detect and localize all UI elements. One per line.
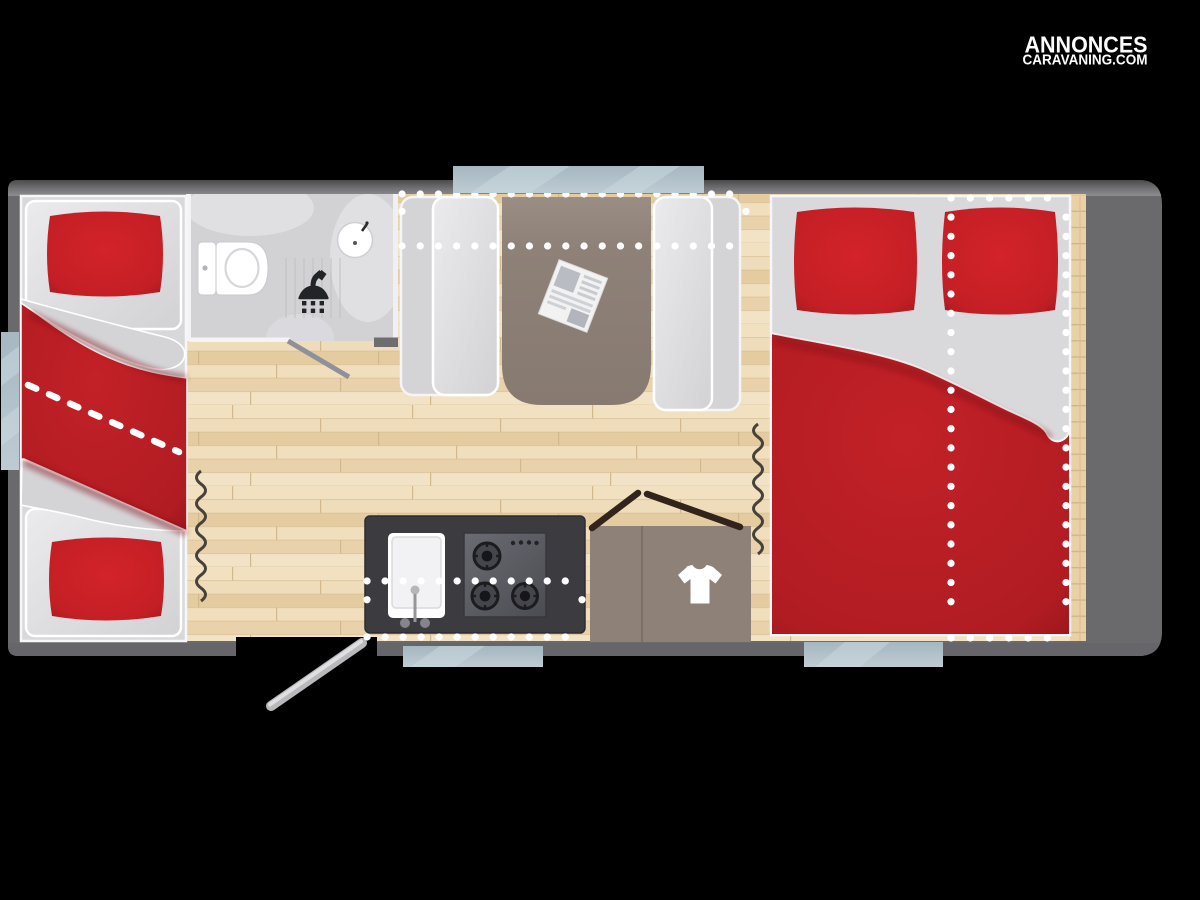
svg-text:CARAVANING.COM: CARAVANING.COM xyxy=(1023,53,1148,69)
